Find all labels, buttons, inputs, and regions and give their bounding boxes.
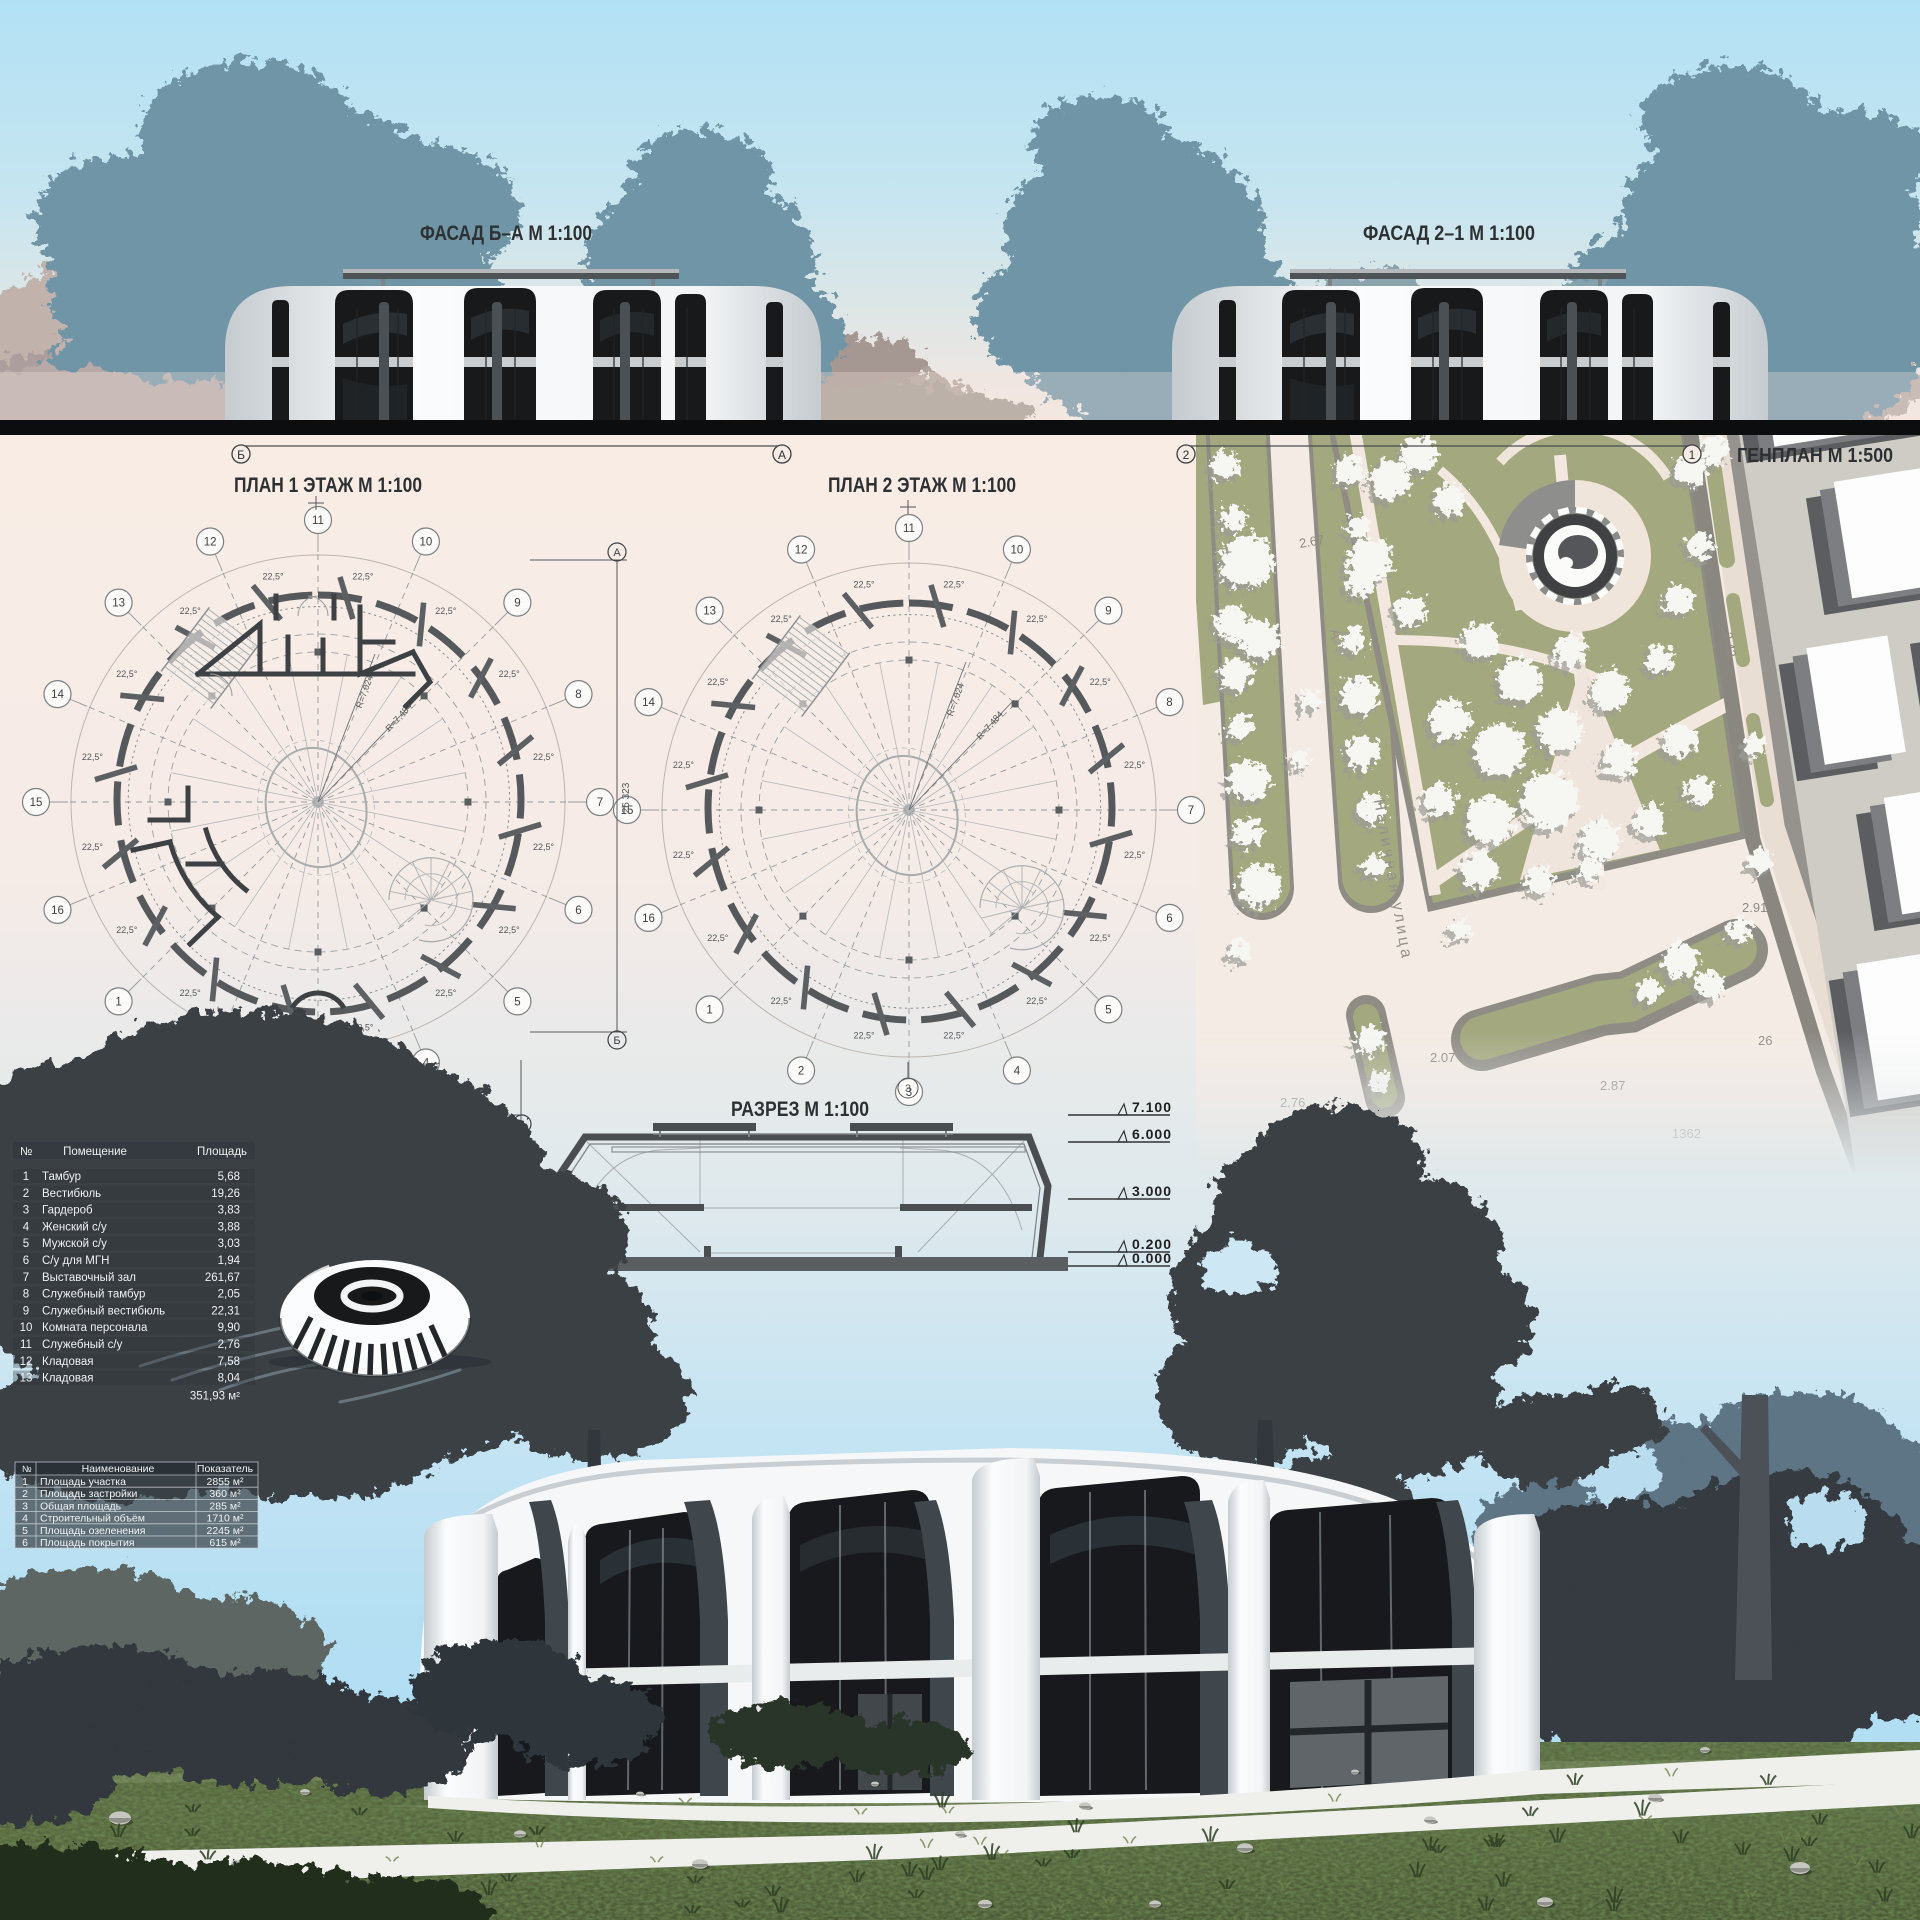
- svg-text:Тамбур: Тамбур: [42, 1171, 81, 1183]
- svg-text:1: 1: [23, 1171, 29, 1183]
- svg-text:Площадь: Площадь: [197, 1146, 247, 1158]
- svg-text:7,58: 7,58: [218, 1356, 240, 1368]
- svg-text:22,5°: 22,5°: [943, 579, 965, 589]
- svg-text:2855 м²: 2855 м²: [207, 1476, 244, 1488]
- svg-text:15: 15: [30, 797, 43, 809]
- svg-text:5: 5: [22, 1525, 28, 1537]
- svg-text:13: 13: [703, 606, 716, 618]
- svg-text:22,5°: 22,5°: [1124, 760, 1146, 770]
- svg-text:19,26: 19,26: [211, 1188, 240, 1200]
- svg-text:5,68: 5,68: [218, 1171, 240, 1183]
- svg-text:Вестибюль: Вестибюль: [42, 1188, 101, 1200]
- svg-text:22,5°: 22,5°: [771, 996, 793, 1006]
- svg-text:4: 4: [1014, 1066, 1021, 1078]
- svg-text:Площадь озеленения: Площадь озеленения: [40, 1525, 146, 1537]
- svg-text:2,76: 2,76: [218, 1339, 240, 1351]
- svg-text:22,5°: 22,5°: [707, 933, 729, 943]
- svg-text:12: 12: [204, 537, 217, 549]
- svg-text:22,5°: 22,5°: [82, 842, 104, 852]
- svg-text:7.100: 7.100: [1132, 1099, 1172, 1115]
- svg-text:1: 1: [706, 1004, 712, 1016]
- svg-text:Гардероб: Гардероб: [42, 1205, 93, 1217]
- svg-text:5: 5: [1105, 1004, 1111, 1016]
- svg-text:3: 3: [905, 1083, 911, 1095]
- svg-text:3,83: 3,83: [218, 1205, 240, 1217]
- svg-text:22,5°: 22,5°: [707, 677, 729, 687]
- svg-text:8: 8: [575, 689, 581, 701]
- svg-text:26 323: 26 323: [621, 782, 632, 813]
- svg-text:3,03: 3,03: [218, 1238, 240, 1250]
- svg-text:11: 11: [312, 515, 324, 527]
- svg-text:22,5°: 22,5°: [943, 1031, 965, 1041]
- svg-text:1: 1: [1689, 448, 1696, 462]
- svg-text:6.000: 6.000: [1132, 1126, 1172, 1142]
- svg-text:9,90: 9,90: [218, 1322, 240, 1334]
- svg-text:4: 4: [22, 1513, 28, 1525]
- svg-text:22,5°: 22,5°: [352, 571, 374, 581]
- svg-text:14: 14: [51, 689, 64, 701]
- svg-text:8: 8: [23, 1289, 29, 1301]
- svg-text:22,5°: 22,5°: [673, 850, 695, 860]
- svg-text:ПЛАН 1 ЭТАЖ М 1:100: ПЛАН 1 ЭТАЖ М 1:100: [234, 474, 422, 497]
- svg-text:6: 6: [1166, 913, 1172, 925]
- svg-text:16: 16: [642, 913, 655, 925]
- svg-text:Площадь участка: Площадь участка: [40, 1476, 126, 1488]
- svg-text:2.76: 2.76: [1280, 1095, 1305, 1110]
- svg-text:22,5°: 22,5°: [533, 752, 555, 762]
- svg-text:10: 10: [1011, 545, 1024, 557]
- svg-text:2: 2: [23, 1188, 29, 1200]
- svg-text:ПЛАН 2 ЭТАЖ М 1:100: ПЛАН 2 ЭТАЖ М 1:100: [828, 474, 1016, 497]
- svg-text:11: 11: [903, 523, 915, 535]
- svg-text:1710 м²: 1710 м²: [207, 1513, 244, 1525]
- svg-text:360 м²: 360 м²: [209, 1488, 241, 1500]
- svg-text:6: 6: [575, 905, 581, 917]
- svg-text:2: 2: [1183, 448, 1190, 462]
- svg-text:22,5°: 22,5°: [854, 1031, 876, 1041]
- svg-text:615 м²: 615 м²: [209, 1537, 241, 1549]
- svg-text:Служебный тамбур: Служебный тамбур: [42, 1289, 145, 1301]
- svg-text:7: 7: [23, 1272, 29, 1284]
- svg-text:22,5°: 22,5°: [435, 606, 457, 616]
- svg-text:0.000: 0.000: [1132, 1250, 1172, 1266]
- svg-text:6: 6: [22, 1537, 28, 1549]
- svg-text:12: 12: [795, 545, 808, 557]
- svg-text:7: 7: [597, 797, 603, 809]
- svg-text:22,31: 22,31: [211, 1305, 240, 1317]
- svg-text:285 м²: 285 м²: [209, 1500, 241, 1512]
- svg-text:3.000: 3.000: [1132, 1183, 1172, 1199]
- svg-text:Наименование: Наименование: [82, 1463, 155, 1475]
- svg-text:1,94: 1,94: [218, 1255, 241, 1267]
- svg-text:22,5°: 22,5°: [854, 579, 876, 589]
- svg-text:Помещение: Помещение: [63, 1146, 127, 1158]
- svg-text:Служебный с/у: Служебный с/у: [42, 1339, 123, 1351]
- svg-text:7: 7: [1188, 805, 1194, 817]
- svg-text:2: 2: [798, 1066, 804, 1078]
- svg-text:10: 10: [420, 537, 433, 549]
- svg-text:9: 9: [1105, 606, 1111, 618]
- svg-text:Показатель: Показатель: [197, 1463, 254, 1475]
- svg-text:2: 2: [22, 1488, 28, 1500]
- svg-text:Строительный объём: Строительный объём: [40, 1513, 145, 1525]
- svg-text:№: №: [22, 1464, 32, 1474]
- svg-text:Комната персонала: Комната персонала: [42, 1322, 148, 1334]
- svg-text:22,5°: 22,5°: [1090, 677, 1112, 687]
- svg-text:Б: Б: [613, 1035, 620, 1047]
- svg-text:9: 9: [514, 598, 520, 610]
- svg-text:22,5°: 22,5°: [1026, 614, 1048, 624]
- svg-text:16: 16: [51, 905, 64, 917]
- svg-text:Женский с/у: Женский с/у: [42, 1221, 107, 1233]
- svg-text:Выставочный зал: Выставочный зал: [42, 1272, 136, 1284]
- svg-text:Б: Б: [237, 448, 245, 462]
- svg-text:351,93 м²: 351,93 м²: [190, 1390, 240, 1402]
- svg-text:А: А: [613, 547, 621, 559]
- svg-text:2245 м²: 2245 м²: [207, 1525, 244, 1537]
- svg-text:№: №: [20, 1146, 32, 1158]
- svg-text:22,5°: 22,5°: [1090, 933, 1112, 943]
- svg-text:14: 14: [642, 697, 655, 709]
- svg-text:А: А: [778, 448, 786, 462]
- svg-text:2.87: 2.87: [1600, 1078, 1625, 1093]
- svg-text:22,5°: 22,5°: [82, 752, 104, 762]
- svg-text:22,5°: 22,5°: [771, 614, 793, 624]
- svg-text:11: 11: [20, 1339, 32, 1351]
- svg-text:12: 12: [20, 1356, 33, 1368]
- svg-text:22,5°: 22,5°: [1124, 850, 1146, 860]
- svg-text:Площадь застройки: Площадь застройки: [40, 1488, 137, 1500]
- svg-text:22,5°: 22,5°: [1026, 996, 1048, 1006]
- svg-text:1: 1: [22, 1476, 28, 1488]
- svg-text:2.91: 2.91: [1742, 900, 1767, 915]
- svg-text:22,5°: 22,5°: [499, 669, 521, 679]
- svg-text:9: 9: [23, 1305, 29, 1317]
- svg-text:1: 1: [115, 996, 121, 1008]
- svg-text:261,67: 261,67: [205, 1272, 240, 1284]
- svg-text:22,5°: 22,5°: [263, 571, 285, 581]
- svg-text:22,5°: 22,5°: [533, 842, 555, 852]
- svg-text:3: 3: [23, 1205, 29, 1217]
- svg-text:С/у для МГН: С/у для МГН: [42, 1255, 109, 1267]
- svg-text:8: 8: [1166, 697, 1172, 709]
- svg-text:5: 5: [23, 1238, 29, 1250]
- svg-text:2.07: 2.07: [1430, 1050, 1455, 1065]
- svg-text:22,5°: 22,5°: [673, 760, 695, 770]
- svg-text:Площадь покрытия: Площадь покрытия: [40, 1537, 135, 1549]
- svg-text:1362: 1362: [1672, 1126, 1701, 1141]
- svg-text:8,04: 8,04: [218, 1373, 241, 1385]
- svg-text:4: 4: [23, 1221, 30, 1233]
- svg-text:10: 10: [20, 1322, 33, 1334]
- svg-text:3,88: 3,88: [218, 1221, 240, 1233]
- svg-text:13: 13: [112, 598, 125, 610]
- svg-text:Служебный вестибюль: Служебный вестибюль: [42, 1305, 165, 1317]
- svg-text:ФАСАД Б–А М 1:100: ФАСАД Б–А М 1:100: [420, 222, 592, 245]
- svg-text:2,05: 2,05: [218, 1289, 240, 1301]
- svg-text:26: 26: [1758, 1033, 1772, 1048]
- svg-text:22,5°: 22,5°: [180, 988, 202, 998]
- svg-text:22,5°: 22,5°: [116, 925, 138, 935]
- svg-text:22,5°: 22,5°: [116, 669, 138, 679]
- svg-text:22,5°: 22,5°: [499, 925, 521, 935]
- svg-text:5: 5: [514, 996, 520, 1008]
- svg-text:Кладовая: Кладовая: [42, 1373, 94, 1385]
- svg-text:22,5°: 22,5°: [435, 988, 457, 998]
- svg-text:22,5°: 22,5°: [180, 606, 202, 616]
- svg-text:Мужской с/у: Мужской с/у: [42, 1238, 107, 1250]
- svg-text:Кладовая: Кладовая: [42, 1356, 94, 1368]
- svg-text:ГЕНПЛАН М 1:500: ГЕНПЛАН М 1:500: [1737, 445, 1893, 467]
- svg-text:ФАСАД 2–1 М 1:100: ФАСАД 2–1 М 1:100: [1363, 222, 1535, 245]
- svg-text:3: 3: [22, 1500, 28, 1512]
- svg-text:РАЗРЕЗ М 1:100: РАЗРЕЗ М 1:100: [731, 1098, 869, 1121]
- svg-text:13: 13: [20, 1373, 33, 1385]
- svg-text:Общая площадь: Общая площадь: [40, 1500, 122, 1512]
- svg-text:6: 6: [23, 1255, 29, 1267]
